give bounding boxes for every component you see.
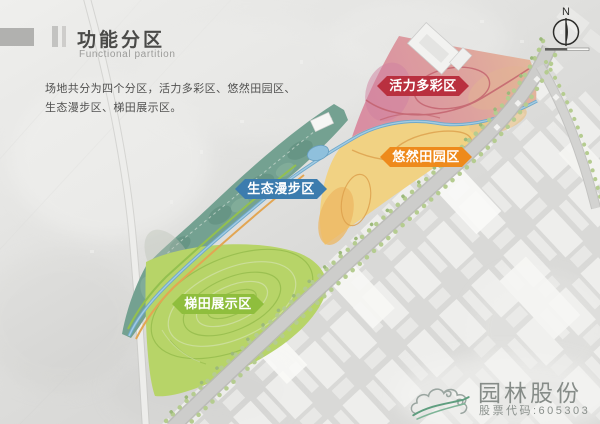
cloud-logo-icon (406, 377, 474, 421)
page-subtitle: Functional partition (79, 49, 176, 60)
zone-label-pastoral: 悠然田园区 (380, 147, 472, 167)
stock-code: 股票代码:605303 (479, 402, 590, 418)
zone-label-vitality: 活力多彩区 (377, 76, 469, 96)
zone-label-eco-stroll: 生态漫步区 (235, 179, 327, 199)
title-accent-block (0, 28, 34, 46)
north-compass-icon: N (543, 2, 595, 52)
title-accent-bar-2 (62, 26, 66, 47)
title-accent-bar (52, 26, 58, 47)
site-plan-map (0, 0, 600, 424)
slide: 功能分区 Functional partition 场地共分为四个分区，活力多彩… (0, 0, 600, 424)
page-title: 功能分区 (77, 25, 165, 52)
scale-bar (545, 48, 589, 51)
description-line-2: 生态漫步区、梯田展示区。 (45, 99, 445, 118)
north-label: N (562, 6, 570, 18)
zone-label-terrace: 梯田展示区 (172, 294, 264, 314)
